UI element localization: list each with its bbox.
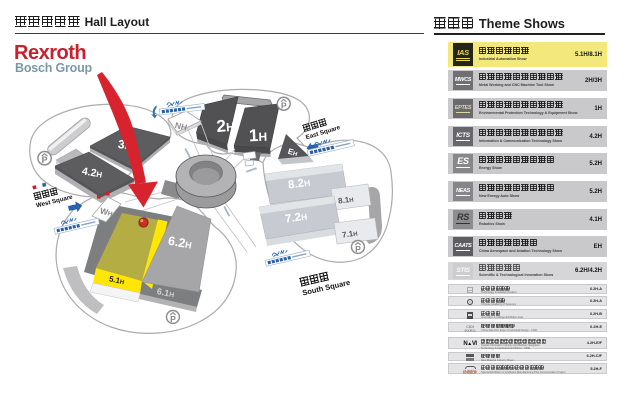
svg-text:West Square: West Square	[35, 194, 73, 210]
svg-text:East Square: East Square	[305, 124, 342, 141]
